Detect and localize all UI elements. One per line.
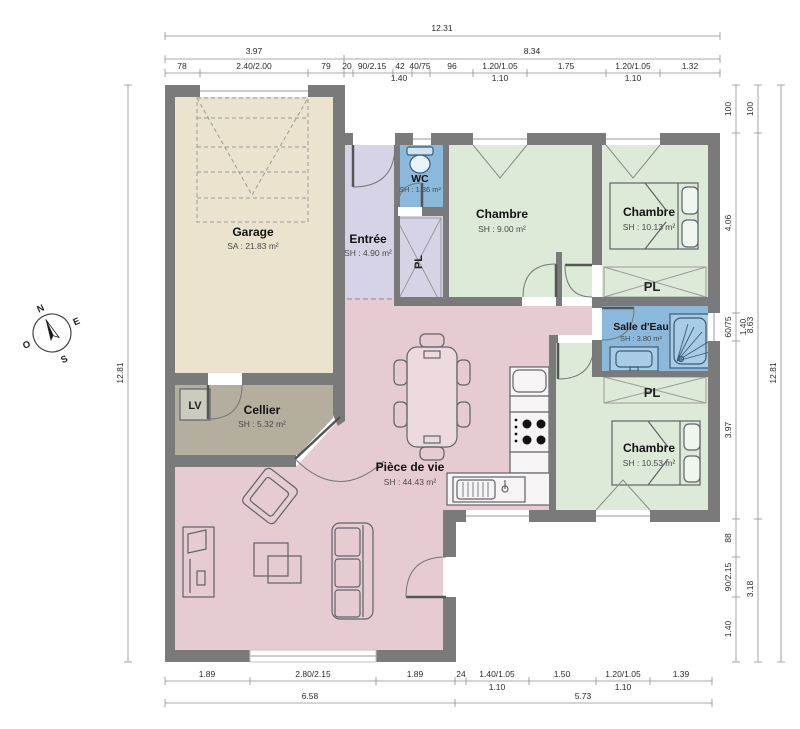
dim-label: 1.10 [625, 73, 642, 83]
dim-label: 78 [177, 61, 187, 71]
room-label-cellier: Cellier [244, 403, 281, 417]
compass-west-label: O [21, 339, 32, 352]
kitchen-sink [447, 473, 550, 505]
dim-label: 12.31 [431, 23, 453, 33]
dim-label: 42 [395, 61, 405, 71]
dim-label: 6.58 [302, 691, 319, 701]
dim-label: 1.10 [492, 73, 509, 83]
room-label-chambre2: Chambre [623, 205, 675, 219]
compass-south-label: S [59, 353, 69, 366]
door-gap [558, 335, 592, 343]
dim-label: 100 [723, 102, 733, 116]
floor-plan-page: Garage SA : 21.83 m² Entrée SH : 4.90 m²… [0, 0, 800, 729]
floor-plan: Garage SA : 21.83 m² Entrée SH : 4.90 m²… [0, 0, 800, 729]
dim-label: 90/2.15 [358, 61, 387, 71]
room-area-chambre1: SH : 9.00 m² [478, 224, 526, 234]
room-label-chambre3: Chambre [623, 441, 675, 455]
room-area-cellier: SH : 5.32 m² [238, 419, 286, 429]
dim-label: 96 [447, 61, 457, 71]
dim-label: 60/75 [723, 316, 733, 338]
room-area-entree: SH : 4.90 m² [344, 248, 392, 258]
dim-label: 5.73 [575, 691, 592, 701]
dim-label: 100 [745, 102, 755, 116]
dim-label: 24 [456, 669, 466, 679]
dim-label: 1.10 [615, 682, 632, 692]
dim-label: 1.20/1.05 [605, 669, 641, 679]
room-area-sde: SH : 3.80 m² [620, 334, 663, 343]
room-label-chambre1: Chambre [476, 207, 528, 221]
dim-label: 1.89 [407, 669, 424, 679]
dim-label: 1.50 [554, 669, 571, 679]
dim-label: 1.89 [199, 669, 216, 679]
dim-label: 3.18 [745, 580, 755, 597]
sink-icon [610, 347, 658, 371]
door-gap [562, 297, 592, 306]
dim-label: 1.20/1.05 [482, 61, 518, 71]
dim-label: 8.34 [524, 46, 541, 56]
room-area-chambre3: SH : 10.53 m² [623, 458, 676, 468]
dim-label: 12.81 [115, 362, 125, 384]
door-gap [592, 265, 602, 297]
kitchen-counter [510, 367, 549, 473]
dim-label: 1.39 [673, 669, 690, 679]
door-gap [398, 207, 422, 216]
dim-label: 3.97 [723, 421, 733, 438]
room-label-sde: Salle d'Eau [613, 321, 669, 333]
front-door-gap [353, 133, 395, 145]
closet-label-pl: PL [644, 385, 661, 400]
dim-label: 2.80/2.15 [295, 669, 331, 679]
compass-north-label: N [35, 302, 46, 315]
dim-label: 1.40 [391, 73, 408, 83]
compass-east-label: E [71, 316, 81, 329]
room-label-sejour: Pièce de vie [376, 460, 445, 474]
closet-label-pl: PL [644, 279, 661, 294]
dim-label: 3.97 [246, 46, 263, 56]
dim-label: 88 [723, 533, 733, 543]
dim-label: 1.32 [682, 61, 699, 71]
french-door-gap [443, 557, 456, 597]
dim-label: 12.81 [768, 362, 778, 384]
dim-label: 79 [321, 61, 331, 71]
dim-label: 2.40/2.00 [236, 61, 272, 71]
shower-icon [670, 314, 710, 368]
door-gap [592, 308, 602, 340]
dim-label: 40/75 [409, 61, 431, 71]
room-area-wc: SH : 1.36 m² [399, 185, 442, 194]
room-area-chambre2: SH : 10.13 m² [623, 222, 676, 232]
door-gap [522, 297, 556, 306]
dim-label: 1.10 [489, 682, 506, 692]
compass-icon: N E S O [10, 291, 94, 378]
door-gap [208, 373, 242, 385]
dim-label: 20 [342, 61, 352, 71]
dim-label: 1.40 [723, 620, 733, 637]
room-area-sejour: SH : 44.43 m² [384, 477, 437, 487]
dim-label: 1.75 [558, 61, 575, 71]
room-label-garage: Garage [232, 225, 274, 239]
closet-label-pl: PL [413, 255, 425, 269]
room-label-wc: WC [411, 173, 429, 185]
dim-label: 4.06 [723, 214, 733, 231]
appliance-label-lv: LV [188, 400, 202, 412]
room-area-garage: SA : 21.83 m² [227, 241, 279, 251]
dim-label: 1.20/1.05 [615, 61, 651, 71]
dim-label: 8.63 [745, 316, 755, 333]
dim-label: 1.40/1.05 [479, 669, 515, 679]
room-label-entree: Entrée [349, 232, 387, 246]
dim-label: 90/2.15 [723, 563, 733, 592]
